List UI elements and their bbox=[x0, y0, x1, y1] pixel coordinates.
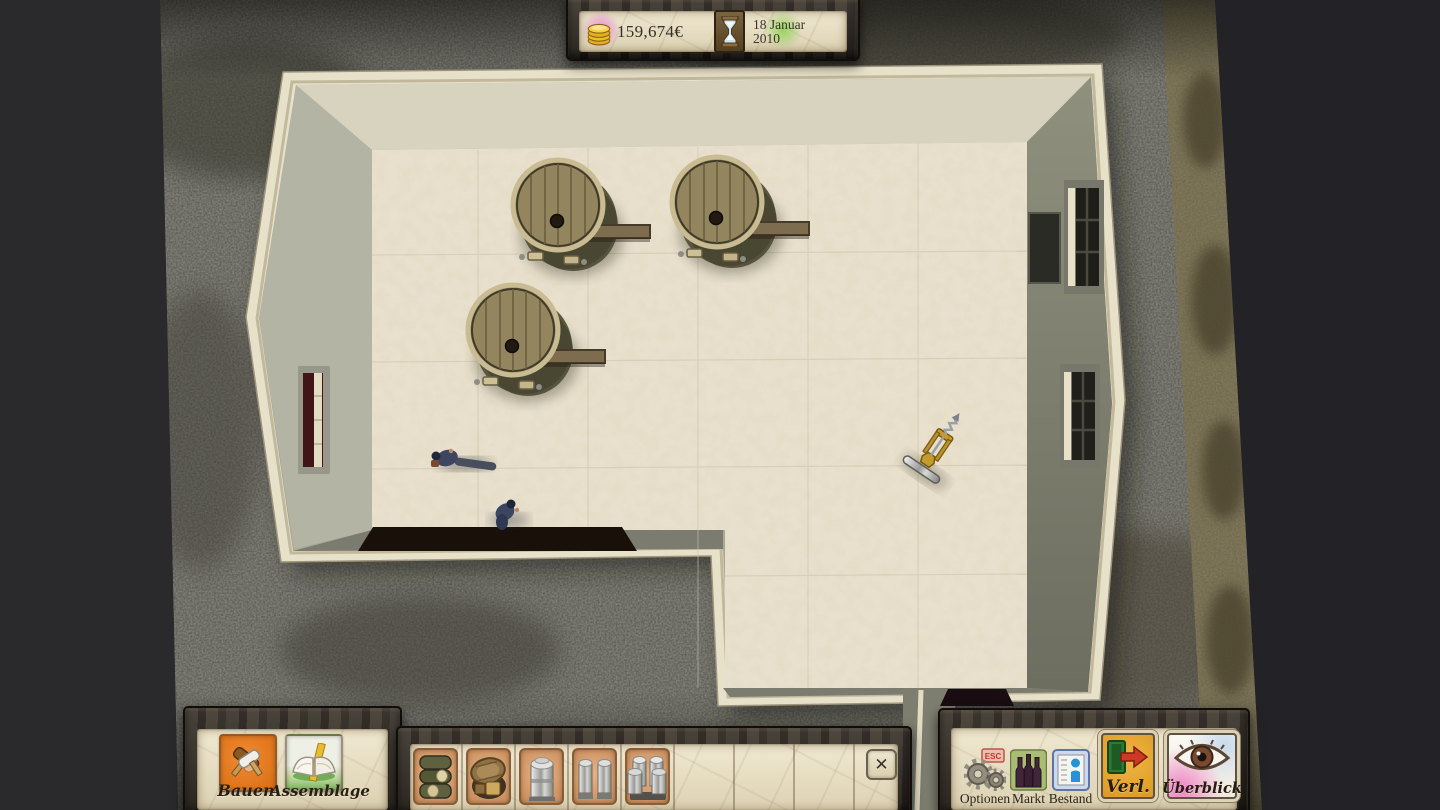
equipment-toolbar: ✕ bbox=[396, 726, 912, 810]
gears-icon: ESC bbox=[964, 747, 1006, 791]
empty-slot bbox=[795, 744, 855, 810]
steel-tank-group-icon bbox=[626, 754, 670, 802]
map-void-left bbox=[0, 0, 178, 810]
doorway-bottom-right bbox=[940, 689, 1014, 706]
slot-barrel-stack[interactable] bbox=[410, 744, 463, 810]
close-icon: ✕ bbox=[874, 755, 888, 775]
equipment-toolbar-parchment bbox=[410, 744, 898, 810]
coins-icon bbox=[586, 18, 612, 46]
open-book-icon bbox=[290, 743, 338, 783]
crossed-hammers-icon bbox=[225, 742, 271, 784]
wall-face-top bbox=[296, 77, 1091, 150]
game-screen: 159,674€ 18 Januar 2010 bbox=[0, 0, 1440, 810]
bestand-button[interactable]: Bestand bbox=[1048, 728, 1093, 810]
money-value: 159,674€ bbox=[617, 22, 683, 42]
hourglass-frame bbox=[714, 10, 745, 53]
empty-slot bbox=[735, 744, 795, 810]
assemblage-label: Assemblage bbox=[270, 782, 366, 800]
wine-bottles-icon bbox=[1010, 749, 1047, 791]
exit-door-arrow-icon bbox=[1106, 739, 1150, 775]
markt-label: Markt bbox=[1012, 791, 1045, 807]
build-menu-parchment: Bauen Assemblage bbox=[197, 729, 388, 810]
ueberblick-button[interactable]: Überblick bbox=[1167, 733, 1237, 799]
empty-slot bbox=[675, 744, 735, 810]
verlassen-label: Verl. bbox=[1095, 777, 1161, 797]
money-display: 159,674€ bbox=[579, 11, 714, 52]
main-menu-panel: ESC Optionen Markt bbox=[938, 708, 1250, 810]
hud-topbar: 159,674€ 18 Januar 2010 bbox=[566, 0, 860, 61]
markt-button[interactable]: Markt bbox=[1009, 728, 1048, 810]
wooden-vat-icon bbox=[469, 754, 509, 802]
date-line-1: 18 Januar bbox=[753, 18, 847, 32]
close-toolbar-button[interactable]: ✕ bbox=[866, 749, 897, 780]
doorway-bottom-left bbox=[358, 527, 637, 551]
steel-tank-pair-icon bbox=[576, 754, 614, 802]
slot-wooden-vat[interactable] bbox=[463, 744, 516, 810]
left-wall-window bbox=[298, 366, 330, 474]
ueberblick-label: Überblick bbox=[1161, 780, 1243, 797]
verlassen-button[interactable]: Verl. bbox=[1101, 733, 1155, 799]
steel-tank-icon bbox=[526, 754, 558, 802]
game-viewport bbox=[0, 0, 1440, 810]
build-menu-panel: Bauen Assemblage bbox=[183, 706, 402, 810]
optionen-label: Optionen bbox=[960, 791, 1010, 807]
barrel-stack-icon bbox=[417, 754, 455, 802]
slot-steel-tank[interactable] bbox=[516, 744, 569, 810]
optionen-button[interactable]: ESC Optionen bbox=[961, 728, 1009, 810]
bestand-label: Bestand bbox=[1049, 791, 1093, 807]
slot-steel-tank-pair[interactable] bbox=[569, 744, 622, 810]
info-ledger-icon bbox=[1052, 749, 1090, 791]
hourglass-icon bbox=[721, 16, 739, 47]
date-display: 18 Januar 2010 bbox=[745, 11, 847, 52]
overview-eye-icon bbox=[1173, 739, 1231, 775]
slot-steel-tank-group[interactable] bbox=[622, 744, 675, 810]
main-menu-parchment: ESC Optionen Markt bbox=[951, 728, 1237, 810]
date-line-2: 2010 bbox=[753, 32, 847, 46]
esc-badge: ESC bbox=[985, 752, 1002, 761]
hud-topbar-parchment: 159,674€ 18 Januar 2010 bbox=[579, 11, 847, 52]
